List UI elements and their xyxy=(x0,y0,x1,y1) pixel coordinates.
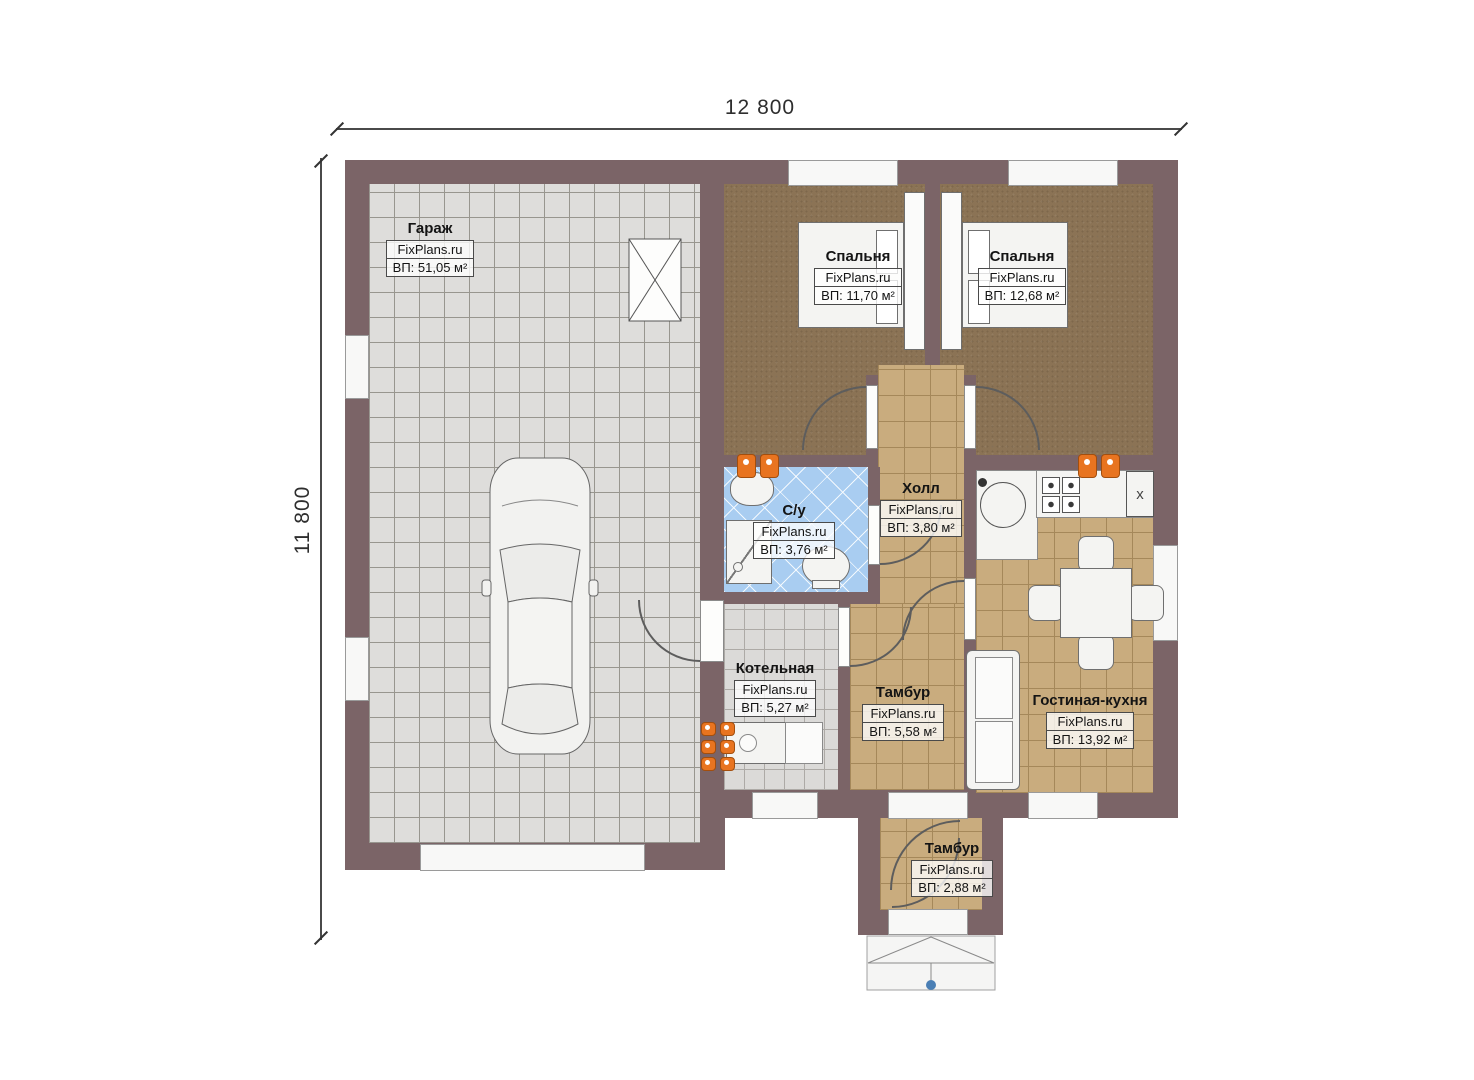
room-area: ВП: 5,27 м² xyxy=(735,699,814,716)
room-label-bedroom-2: Спальня FixPlans.ru ВП: 12,68 м² xyxy=(972,248,1072,305)
window xyxy=(345,637,369,701)
room-area: ВП: 2,88 м² xyxy=(912,879,991,896)
room-label-garage: Гараж FixPlans.ru ВП: 51,05 м² xyxy=(370,220,490,277)
watermark: FixPlans.ru xyxy=(1047,713,1134,731)
entry-door xyxy=(888,909,968,935)
room-area: ВП: 5,58 м² xyxy=(863,723,942,740)
room-area: ВП: 12,68 м² xyxy=(979,287,1066,304)
watermark: FixPlans.ru xyxy=(387,241,474,259)
dining-chair-icon xyxy=(1028,585,1064,621)
watermark: FixPlans.ru xyxy=(863,705,942,723)
room-area: ВП: 13,92 м² xyxy=(1047,731,1134,748)
room-name: Спальня xyxy=(972,248,1072,265)
wall-segment xyxy=(724,592,880,604)
wardrobe-icon xyxy=(941,192,962,350)
dimension-top-label: 12 800 xyxy=(700,96,820,120)
dimension-left-label: 11 800 xyxy=(291,465,315,575)
room-name: Котельная xyxy=(722,660,828,677)
door-leaf xyxy=(964,578,976,640)
room-name: Гостиная-кухня xyxy=(1028,692,1152,709)
watermark: FixPlans.ru xyxy=(979,269,1066,287)
room-label-living-kitchen: Гостиная-кухня FixPlans.ru ВП: 13,92 м² xyxy=(1028,692,1152,749)
room-name: Спальня xyxy=(806,248,910,265)
wall-segment xyxy=(925,160,940,370)
wall-segment xyxy=(976,455,1153,467)
porch-icon xyxy=(866,935,996,993)
window xyxy=(345,335,369,399)
room-area: ВП: 3,76 м² xyxy=(754,541,833,558)
door-opening xyxy=(888,792,968,819)
boiler-unit-icon xyxy=(726,722,822,764)
watermark: FixPlans.ru xyxy=(881,501,960,519)
room-name: С/у xyxy=(744,502,844,519)
radiator-icon xyxy=(701,740,735,754)
door-leaf xyxy=(866,385,878,449)
door-leaf xyxy=(700,600,724,662)
fridge-icon: x xyxy=(1126,471,1154,517)
room-area: ВП: 11,70 м² xyxy=(815,287,901,304)
room-name: Тамбур xyxy=(904,840,1000,857)
sofa-icon xyxy=(966,650,1020,790)
toilet-tank xyxy=(812,580,840,589)
vent-shaft-icon xyxy=(628,238,682,322)
room-name: Тамбур xyxy=(856,684,950,701)
radiator-icon xyxy=(701,757,735,771)
room-name: Холл xyxy=(876,480,966,497)
room-name: Гараж xyxy=(370,220,490,237)
radiator-icon xyxy=(737,454,779,478)
room-label-boiler-room: Котельная FixPlans.ru ВП: 5,27 м² xyxy=(722,660,828,717)
window xyxy=(752,792,818,819)
window xyxy=(788,160,898,186)
watermark: FixPlans.ru xyxy=(754,523,833,541)
room-label-bathroom: С/у FixPlans.ru ВП: 3,76 м² xyxy=(744,502,844,559)
dimension-left-line xyxy=(320,158,322,940)
radiator-icon xyxy=(701,722,735,736)
floor-plan-canvas: 12 800 11 800 xyxy=(0,0,1474,1080)
stove-icon xyxy=(1042,477,1080,513)
dining-chair-icon xyxy=(1128,585,1164,621)
watermark: FixPlans.ru xyxy=(912,861,991,879)
door-leaf xyxy=(964,385,976,449)
dining-chair-icon xyxy=(1078,634,1114,670)
entry-point-marker xyxy=(926,980,936,990)
garage-gate xyxy=(420,844,645,871)
room-area: ВП: 51,05 м² xyxy=(387,259,474,276)
room-label-bedroom-1: Спальня FixPlans.ru ВП: 11,70 м² xyxy=(806,248,910,305)
watermark: FixPlans.ru xyxy=(735,681,814,699)
dining-chair-icon xyxy=(1078,536,1114,572)
watermark: FixPlans.ru xyxy=(815,269,901,287)
car-icon xyxy=(480,450,600,762)
room-label-vestibule-inner: Тамбур FixPlans.ru ВП: 5,58 м² xyxy=(856,684,950,741)
room-label-vestibule-entry: Тамбур FixPlans.ru ВП: 2,88 м² xyxy=(904,840,1000,897)
window xyxy=(1028,792,1098,819)
dimension-top-line xyxy=(336,128,1182,130)
room-label-hall: Холл FixPlans.ru ВП: 3,80 м² xyxy=(876,480,966,537)
kitchen-sink-icon xyxy=(980,482,1026,528)
dining-table-icon xyxy=(1060,568,1132,638)
room-area: ВП: 3,80 м² xyxy=(881,519,960,536)
door-leaf xyxy=(838,607,850,667)
faucet xyxy=(978,478,987,487)
window xyxy=(1008,160,1118,186)
radiator-icon xyxy=(1078,454,1120,478)
drain xyxy=(733,562,743,572)
